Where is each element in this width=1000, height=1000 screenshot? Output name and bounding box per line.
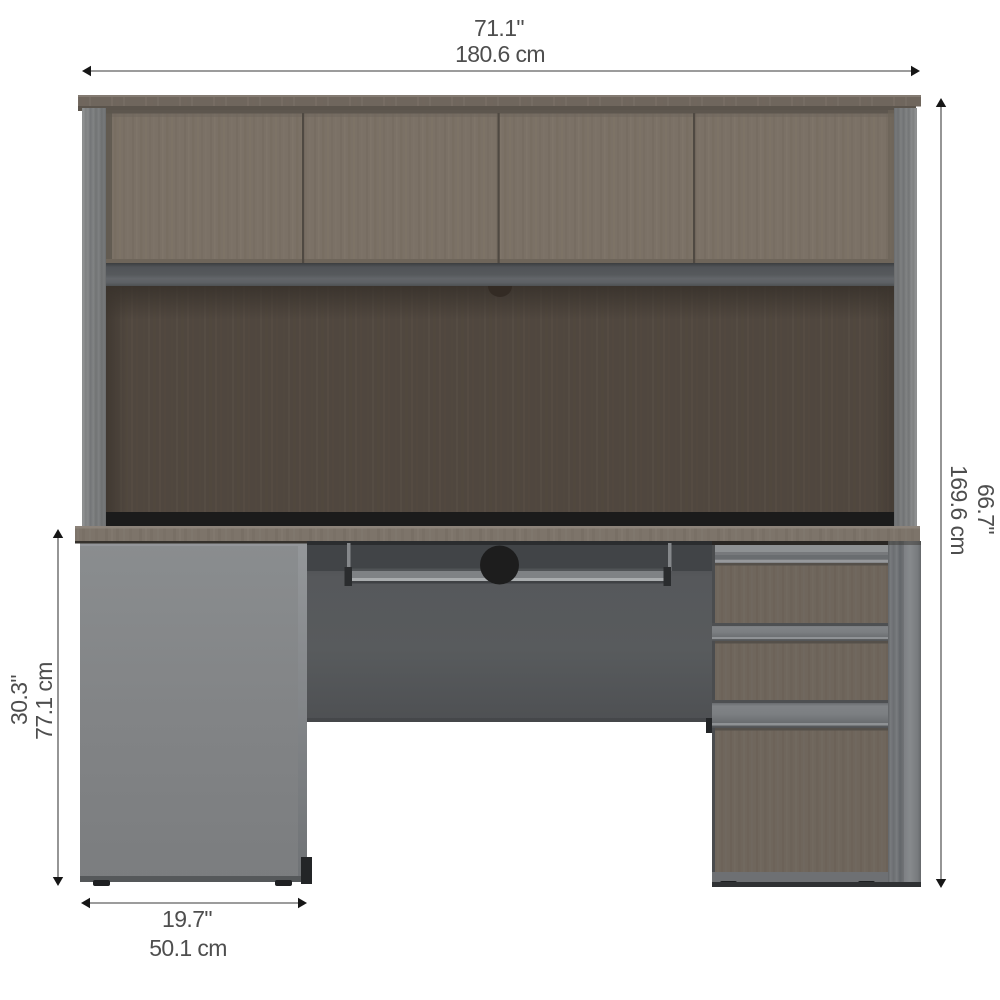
svg-text:50.1 cm: 50.1 cm: [149, 935, 227, 961]
svg-text:30.3": 30.3": [6, 675, 32, 725]
svg-text:66.7": 66.7": [973, 484, 999, 534]
svg-text:180.6 cm: 180.6 cm: [455, 41, 545, 67]
svg-text:71.1": 71.1": [474, 15, 524, 41]
svg-text:169.6 cm: 169.6 cm: [946, 465, 972, 555]
svg-text:19.7": 19.7": [162, 906, 212, 932]
svg-text:77.1 cm: 77.1 cm: [31, 662, 57, 740]
